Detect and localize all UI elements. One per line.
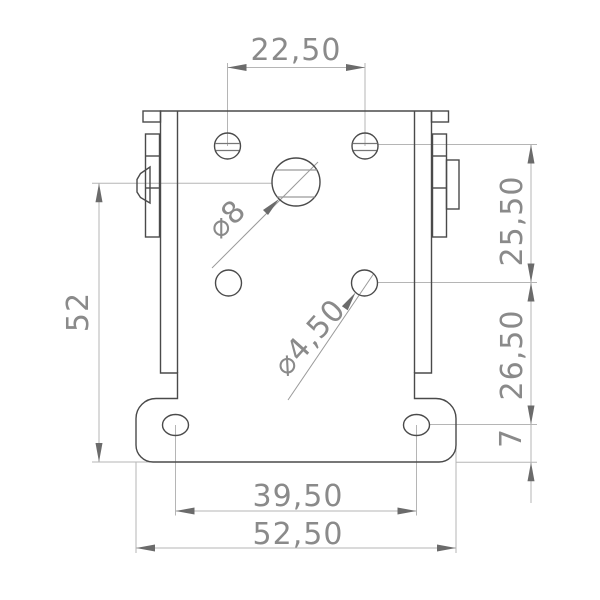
dim-label-right-upper-spacing: 25,50	[495, 176, 530, 267]
side-flange-left	[146, 134, 160, 237]
arrowhead	[528, 283, 535, 302]
dim-label-left-overall-height: 52	[61, 292, 96, 332]
arrowhead	[176, 508, 195, 515]
small-hole-right	[352, 270, 378, 296]
dim-label-bottom-hole-spacing: 39,50	[253, 479, 344, 514]
top-tab-left	[143, 111, 161, 122]
dim-label-bottom-overall-width: 52,50	[253, 517, 344, 552]
dim-label-small-hole-diameter: ⌀4,50	[267, 293, 353, 383]
dim-label-right-foot-offset: 7	[494, 428, 529, 448]
top-tab-right	[432, 111, 449, 122]
arrowhead	[528, 462, 535, 481]
side-flange-right	[433, 134, 447, 237]
small-hole-left	[216, 270, 242, 296]
arrowhead	[346, 64, 365, 71]
dim-label-large-hole-diameter: ⌀8	[201, 193, 253, 245]
side-pin-right	[447, 160, 460, 209]
technical-drawing-canvas: 22,50 52 25,50 26,50 7 39,50 52,50 ⌀8 ⌀4…	[0, 0, 600, 600]
dim-label-top-hole-spacing: 22,50	[251, 33, 342, 68]
arrowhead	[96, 443, 103, 462]
arrowhead	[96, 183, 103, 202]
arrowhead	[528, 406, 535, 425]
arrowhead	[136, 545, 155, 552]
dim-label-right-lower-spacing: 26,50	[495, 310, 530, 401]
part-outline	[136, 111, 456, 462]
arrowhead	[437, 545, 456, 552]
leader-arrowhead	[263, 199, 279, 215]
large-hole	[272, 158, 320, 206]
arrowhead	[398, 508, 417, 515]
part-geometry	[136, 111, 459, 462]
technical-drawing: 22,50 52 25,50 26,50 7 39,50 52,50 ⌀8 ⌀4…	[0, 0, 600, 600]
arrowhead	[228, 64, 247, 71]
side-pin-left	[137, 167, 150, 203]
arrowhead	[528, 145, 535, 164]
leader-arrowhead	[342, 293, 356, 311]
